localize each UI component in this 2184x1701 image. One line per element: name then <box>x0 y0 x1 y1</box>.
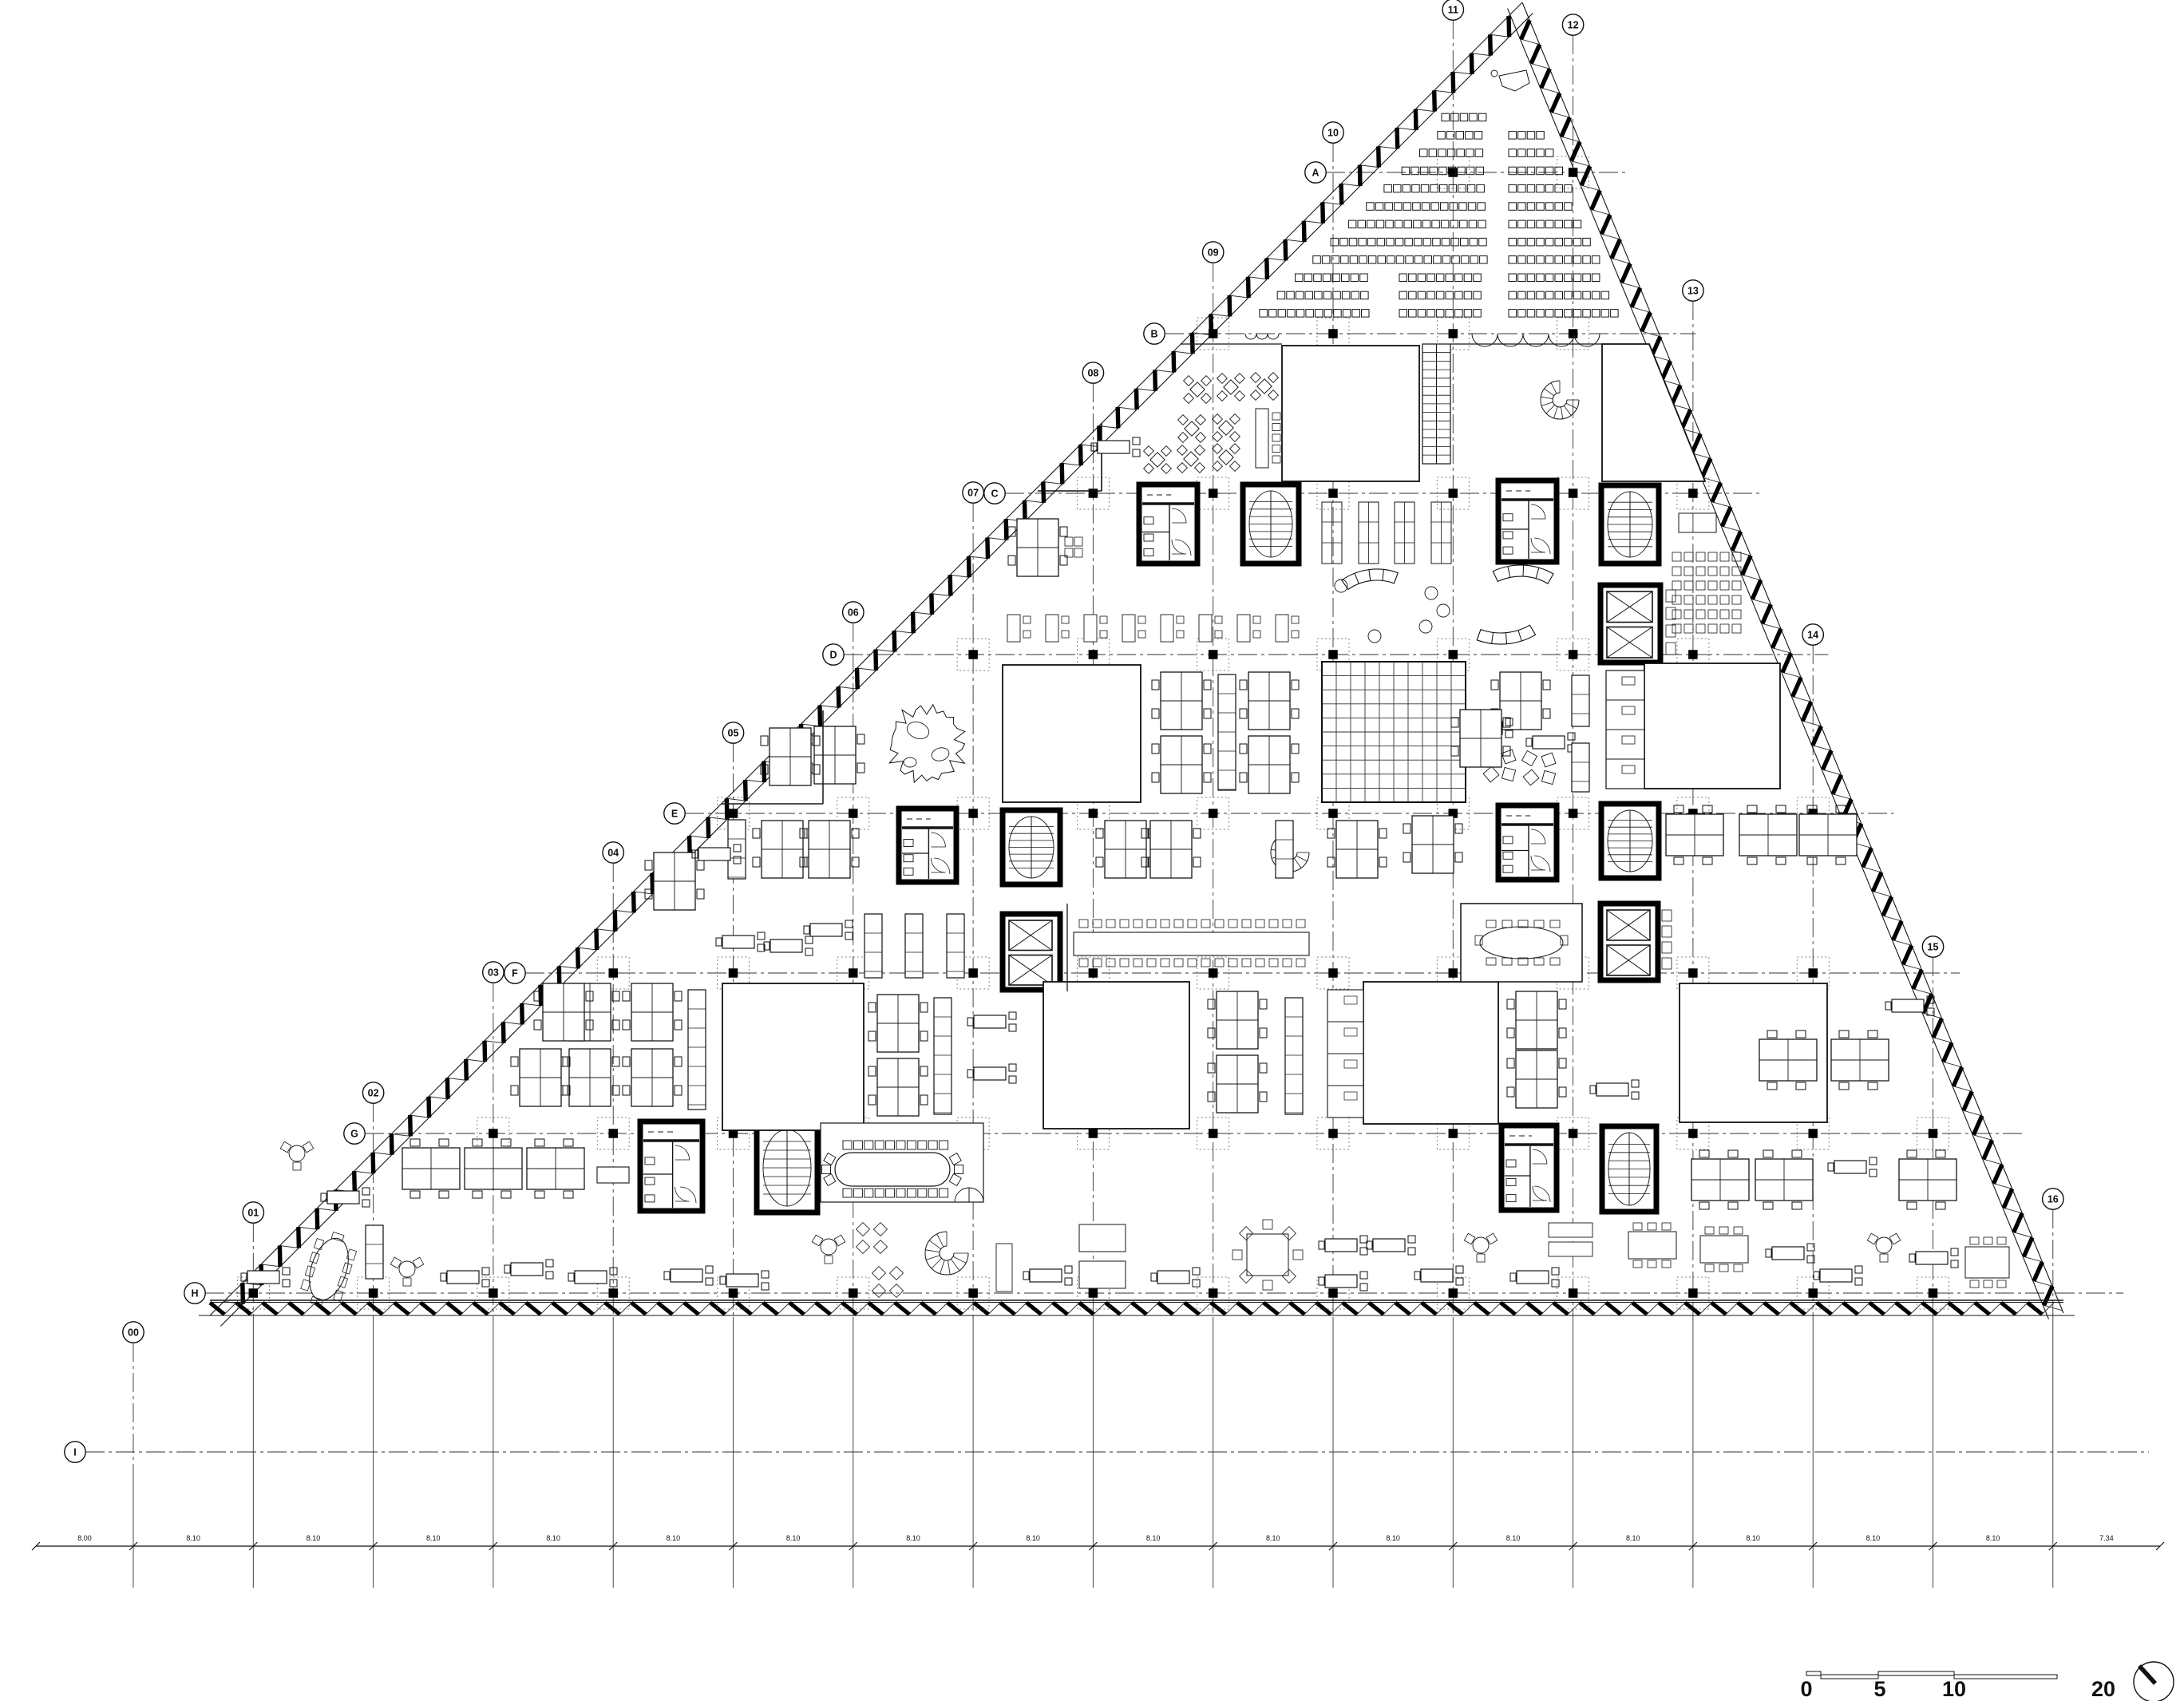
svg-text:C: C <box>991 488 998 499</box>
svg-text:8.10: 8.10 <box>1626 1534 1640 1542</box>
svg-text:05: 05 <box>728 727 739 738</box>
svg-text:8.10: 8.10 <box>1866 1534 1881 1542</box>
svg-text:8.10: 8.10 <box>1386 1534 1400 1542</box>
svg-text:10: 10 <box>1327 127 1339 138</box>
svg-text:08: 08 <box>1087 367 1098 378</box>
svg-text:06: 06 <box>848 607 859 618</box>
svg-text:8.10: 8.10 <box>186 1534 200 1542</box>
svg-text:04: 04 <box>607 847 619 858</box>
svg-text:8.10: 8.10 <box>1986 1534 2000 1542</box>
svg-text:13: 13 <box>1687 285 1699 296</box>
svg-text:8.10: 8.10 <box>1266 1534 1280 1542</box>
svg-text:8.10: 8.10 <box>307 1534 321 1542</box>
svg-text:8.10: 8.10 <box>1146 1534 1161 1542</box>
svg-text:02: 02 <box>368 1087 379 1098</box>
svg-text:11: 11 <box>1448 4 1458 15</box>
svg-text:8.10: 8.10 <box>546 1534 560 1542</box>
svg-text:D: D <box>829 649 837 660</box>
svg-text:10: 10 <box>1942 1677 1966 1701</box>
svg-text:00: 00 <box>128 1327 139 1338</box>
svg-text:8.10: 8.10 <box>906 1534 920 1542</box>
svg-text:I: I <box>73 1446 76 1458</box>
svg-text:01: 01 <box>247 1207 259 1218</box>
svg-text:07: 07 <box>967 487 979 498</box>
svg-text:5: 5 <box>1873 1677 1885 1701</box>
svg-text:G: G <box>350 1128 358 1139</box>
svg-text:A: A <box>1312 167 1319 178</box>
svg-text:03: 03 <box>488 967 499 978</box>
svg-text:7.34: 7.34 <box>2099 1534 2114 1542</box>
svg-text:14: 14 <box>1807 629 1818 640</box>
svg-text:H: H <box>191 1288 198 1299</box>
svg-text:8.10: 8.10 <box>786 1534 801 1542</box>
svg-text:15: 15 <box>1928 941 1939 952</box>
svg-text:16: 16 <box>2047 1193 2059 1205</box>
svg-text:B: B <box>1150 328 1157 339</box>
svg-text:8.10: 8.10 <box>1026 1534 1040 1542</box>
svg-text:8.10: 8.10 <box>1746 1534 1760 1542</box>
svg-text:F: F <box>512 967 518 979</box>
svg-text:0: 0 <box>1800 1677 1812 1701</box>
svg-text:8.10: 8.10 <box>1506 1534 1521 1542</box>
svg-text:12: 12 <box>1568 19 1579 30</box>
svg-text:8.00: 8.00 <box>77 1534 92 1542</box>
svg-text:20: 20 <box>2091 1677 2115 1701</box>
svg-text:8.10: 8.10 <box>667 1534 681 1542</box>
svg-text:09: 09 <box>1208 247 1219 258</box>
svg-text:E: E <box>671 808 678 819</box>
svg-text:8.10: 8.10 <box>426 1534 441 1542</box>
